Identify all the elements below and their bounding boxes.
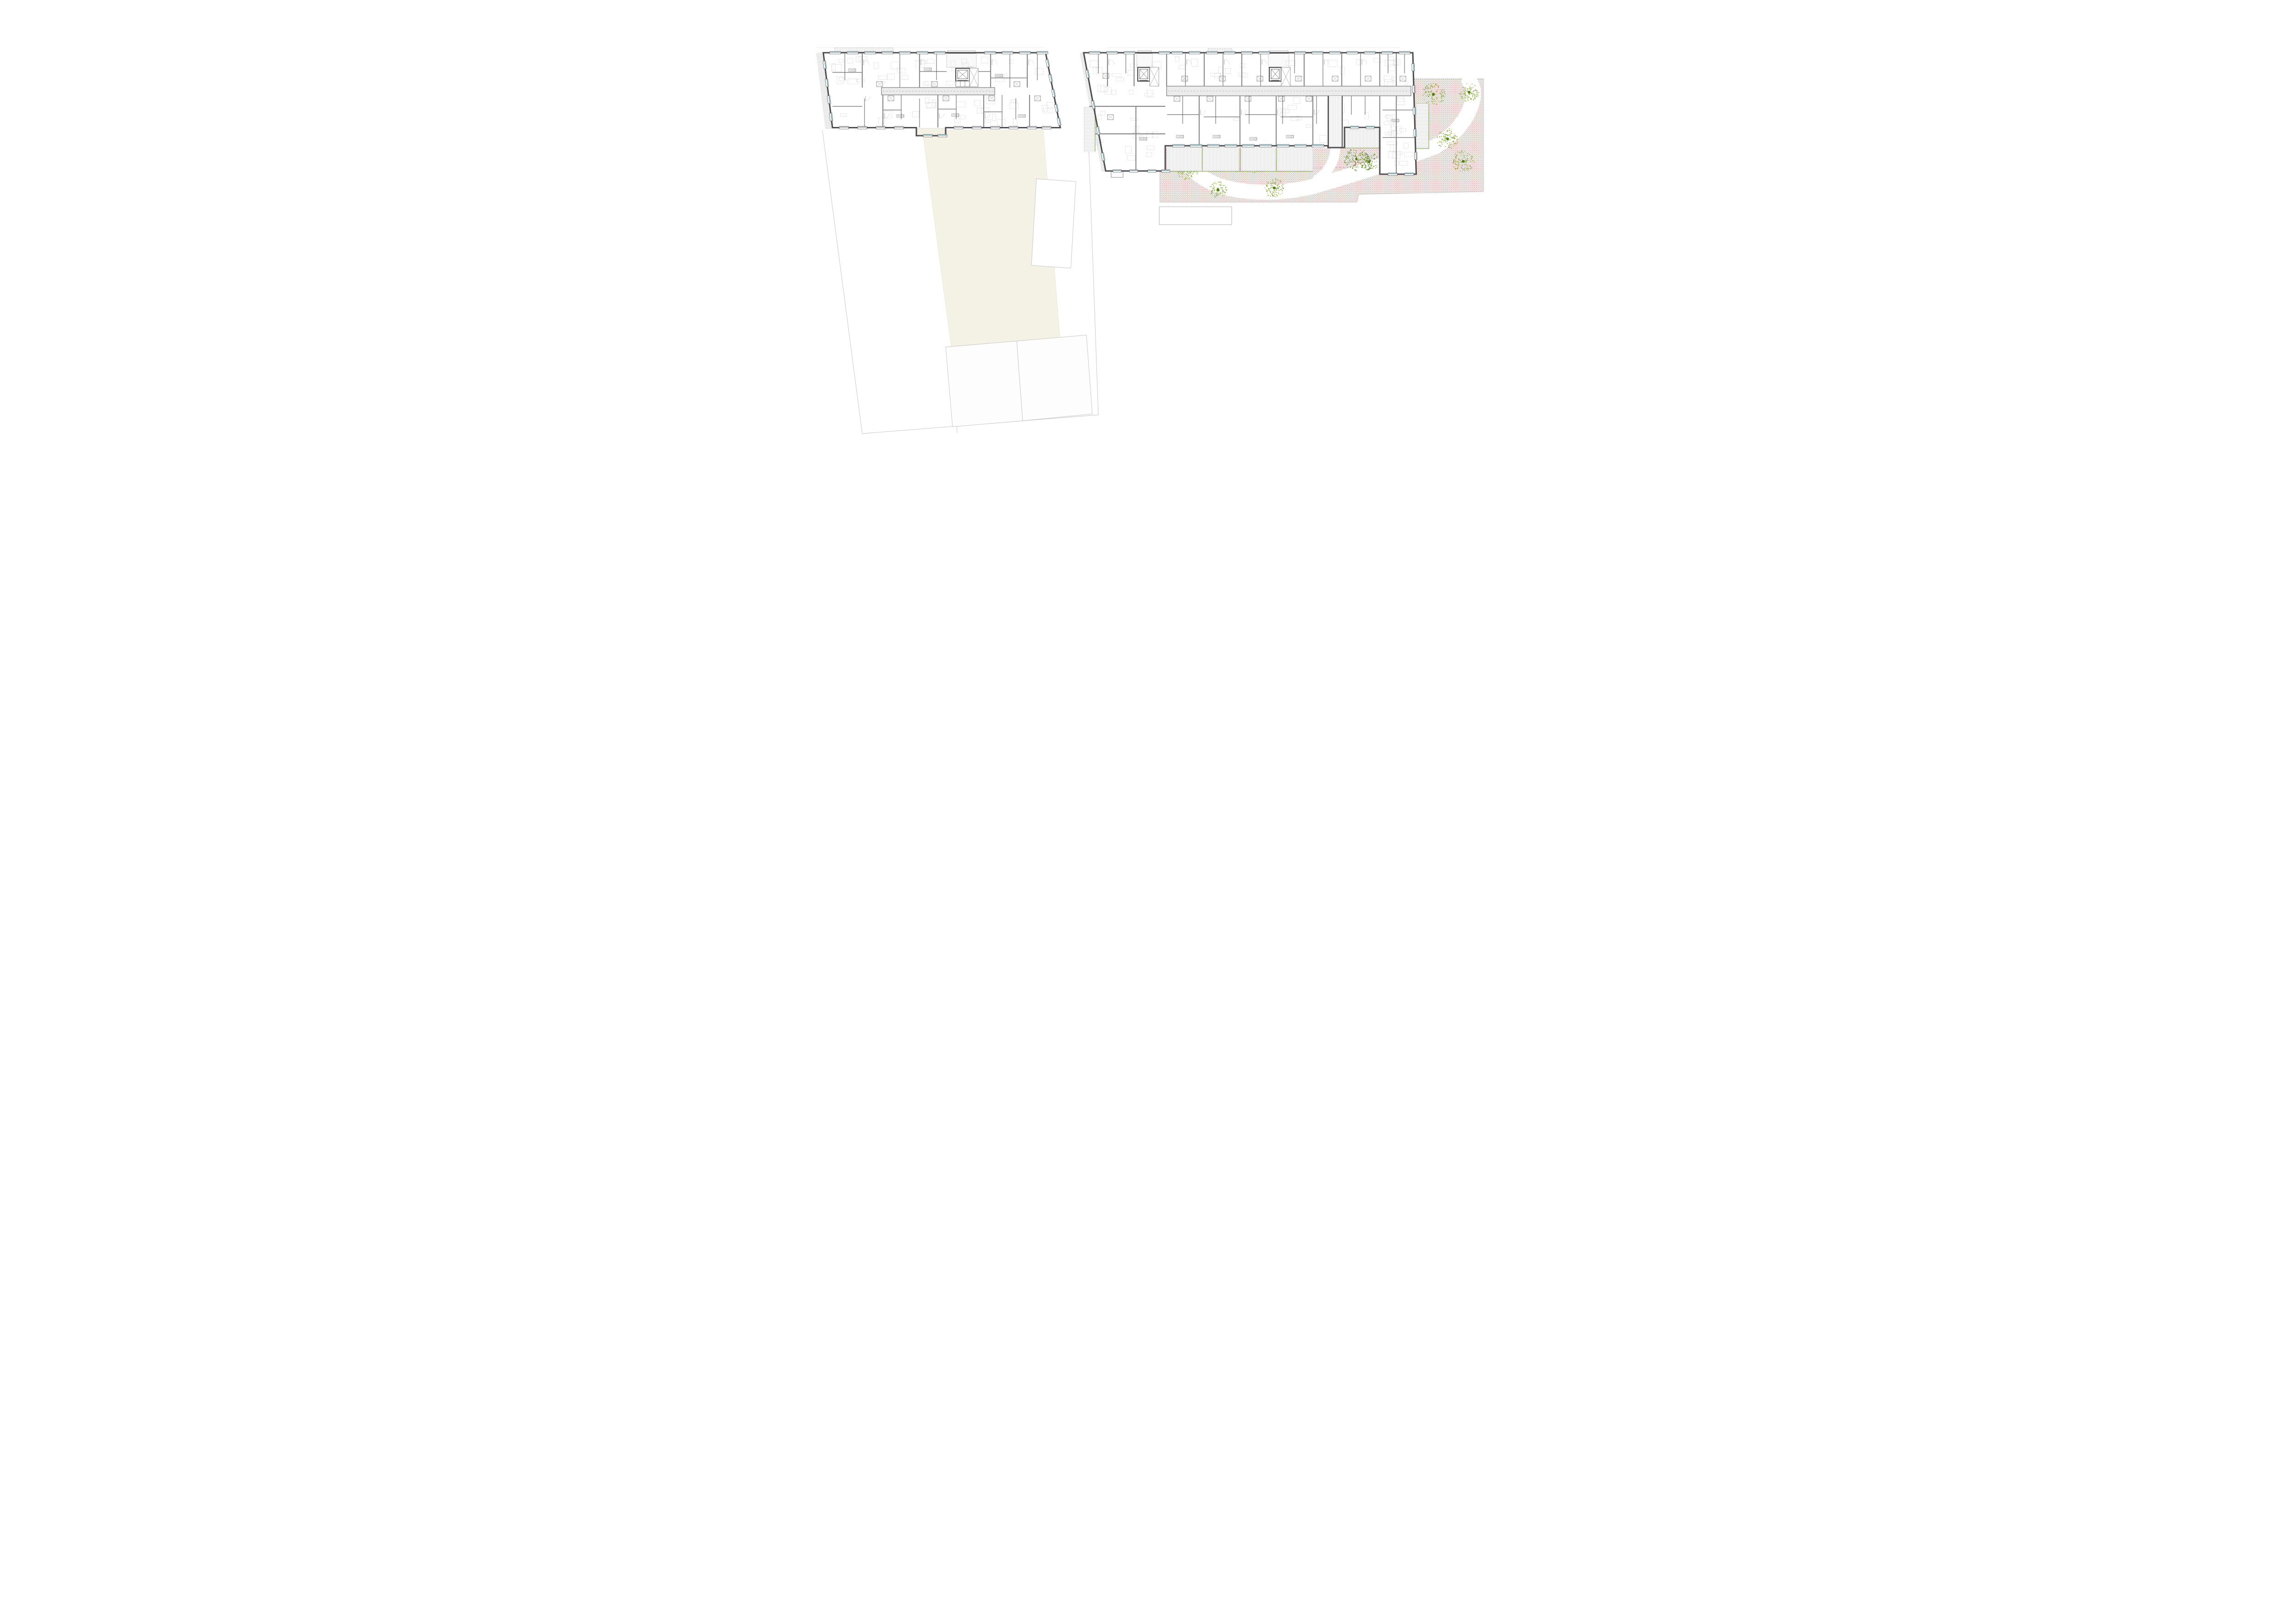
white-notch-parcel [1031, 179, 1076, 268]
window [1019, 51, 1030, 54]
window [865, 51, 876, 54]
window [1173, 144, 1185, 147]
window [847, 51, 858, 54]
window [894, 127, 904, 129]
legend-layer [1159, 207, 1232, 225]
window [1366, 126, 1374, 129]
window [1413, 107, 1416, 115]
window [1347, 51, 1358, 54]
window [1172, 51, 1183, 54]
legend-box [1159, 207, 1232, 225]
window [1312, 144, 1324, 147]
elevator-core [956, 68, 970, 81]
upper-floor-plan-building [816, 51, 1061, 137]
window [1364, 51, 1375, 54]
elevator-core [1269, 67, 1281, 81]
window [1189, 51, 1200, 54]
window [1190, 144, 1202, 147]
corridor [882, 88, 995, 95]
window [985, 51, 996, 54]
window [1312, 51, 1323, 54]
window [882, 51, 893, 54]
window [1405, 173, 1414, 176]
window [1225, 144, 1237, 147]
window [1159, 51, 1170, 54]
stair-core [1281, 67, 1290, 86]
window [1241, 51, 1252, 54]
window [1107, 51, 1118, 54]
parcel-square-1 [946, 341, 1023, 427]
window [1129, 170, 1138, 172]
window [1148, 170, 1156, 172]
window [1037, 51, 1048, 54]
window [1207, 51, 1218, 54]
window [1388, 173, 1397, 176]
garden-passage [1328, 96, 1342, 148]
window [1295, 51, 1306, 54]
window [1382, 51, 1393, 54]
window [954, 127, 963, 129]
window [1295, 144, 1306, 147]
floor-plan-sheet [787, 0, 1505, 479]
window [876, 127, 885, 129]
window [934, 51, 945, 54]
window [839, 127, 848, 129]
window [991, 127, 1000, 129]
window [1009, 127, 1018, 129]
window [899, 51, 910, 54]
window [1113, 170, 1121, 172]
window [1412, 64, 1415, 71]
window [1042, 127, 1051, 129]
parcel-square-2 [1017, 335, 1092, 421]
window [923, 134, 932, 137]
plan-drawing-canvas [787, 0, 1505, 479]
stair-core [970, 68, 978, 87]
window [1002, 51, 1013, 54]
window [1242, 144, 1254, 147]
window [858, 127, 867, 129]
stair-core [1150, 67, 1159, 86]
window [1162, 170, 1170, 172]
window [972, 127, 981, 129]
window [1414, 129, 1416, 137]
window [1089, 51, 1100, 54]
window [1277, 144, 1289, 147]
window [1124, 51, 1135, 54]
window [1329, 51, 1340, 54]
elevator-core [1138, 67, 1150, 81]
window [1259, 51, 1270, 54]
window [1399, 51, 1410, 54]
window [1027, 127, 1036, 129]
window [1350, 126, 1359, 129]
window [1412, 85, 1415, 93]
window [830, 51, 841, 54]
upper-floor-plan-roof-outline [817, 48, 1045, 52]
window [938, 134, 947, 137]
window [1207, 144, 1219, 147]
window [917, 51, 928, 54]
window [1260, 144, 1272, 147]
window [1224, 51, 1235, 54]
core-doors [956, 81, 970, 87]
corridor [1167, 86, 1411, 96]
window [1414, 152, 1417, 160]
site-parcels-layer [822, 130, 1098, 434]
